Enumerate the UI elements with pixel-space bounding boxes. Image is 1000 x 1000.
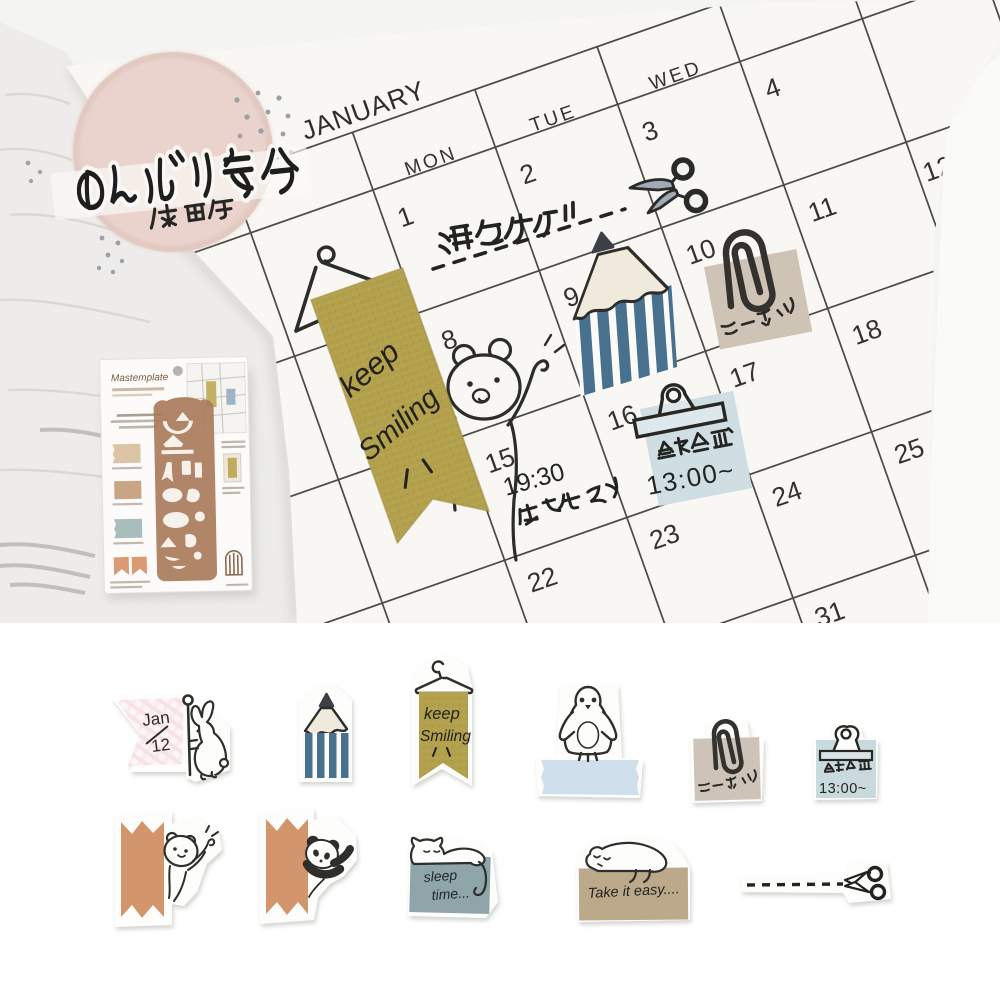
svg-text:sleep: sleep — [423, 867, 458, 885]
svg-text:12: 12 — [150, 735, 171, 756]
svg-text:keep: keep — [424, 705, 460, 723]
svg-text:13:00~: 13:00~ — [819, 781, 867, 797]
svg-text:Smiling: Smiling — [420, 728, 471, 745]
svg-text:time...: time... — [431, 884, 470, 903]
svg-text:Mastemplate: Mastemplate — [111, 372, 169, 384]
